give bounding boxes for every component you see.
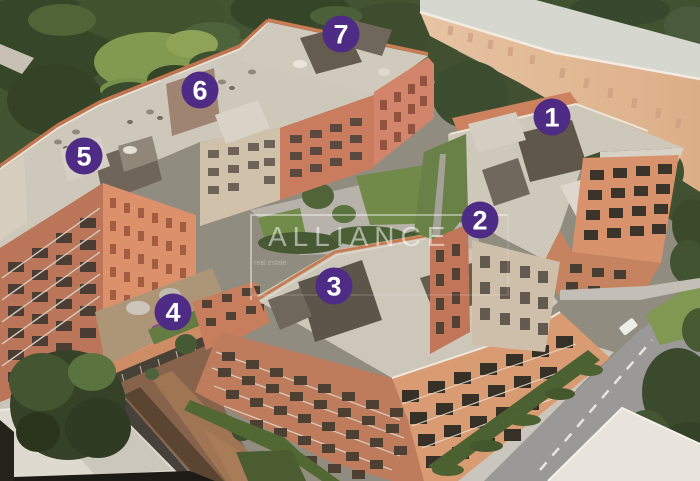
svg-text:2: 2 xyxy=(472,206,487,236)
svg-text:4: 4 xyxy=(165,298,180,328)
svg-text:1: 1 xyxy=(544,103,559,133)
svg-text:7: 7 xyxy=(333,20,348,50)
svg-text:5: 5 xyxy=(76,142,91,172)
svg-text:3: 3 xyxy=(326,272,341,302)
svg-text:ALLIANCE: ALLIANCE xyxy=(268,221,451,252)
svg-text:real estate: real estate xyxy=(254,260,287,267)
svg-text:6: 6 xyxy=(192,76,207,106)
